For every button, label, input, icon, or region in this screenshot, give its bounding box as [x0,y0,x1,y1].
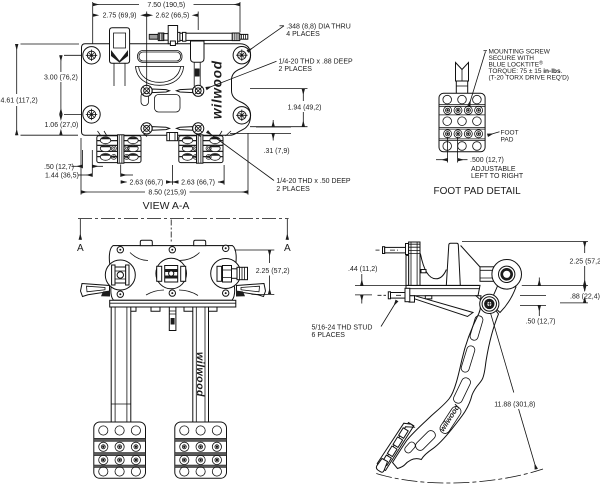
svg-text:11.88 (301,8): 11.88 (301,8) [494,401,535,408]
svg-text:2.62 (66,5): 2.62 (66,5) [155,13,189,20]
svg-text:4.61 (117,2): 4.61 (117,2) [1,97,38,104]
svg-text:PAD: PAD [501,136,514,143]
svg-text:.44 (11,2): .44 (11,2) [348,266,377,273]
svg-text:wilwood: wilwood [194,352,206,397]
svg-text:7.50 (190,5): 7.50 (190,5) [147,2,185,9]
svg-text:A: A [284,243,291,254]
svg-text:2 PLACES: 2 PLACES [279,66,313,73]
svg-text:.50 (12,7): .50 (12,7) [526,318,556,325]
svg-text:1/4-20 THD x .50 DEEP: 1/4-20 THD x .50 DEEP [276,178,351,185]
svg-text:2.63 (66,7): 2.63 (66,7) [181,180,215,187]
svg-text:1.94 (49,2): 1.94 (49,2) [288,105,322,112]
svg-text:(T-20 TORX DRIVE REQ'D): (T-20 TORX DRIVE REQ'D) [489,74,569,81]
svg-text:2.75 (69,9): 2.75 (69,9) [103,13,137,20]
svg-text:wilwood: wilwood [210,60,225,119]
svg-text:6 PLACES: 6 PLACES [312,332,346,339]
svg-text:LEFT TO RIGHT: LEFT TO RIGHT [471,173,524,180]
svg-text:2 PLACES: 2 PLACES [276,186,310,193]
svg-text:2.25 (57,2): 2.25 (57,2) [256,268,290,275]
svg-text:FOOT PAD DETAIL: FOOT PAD DETAIL [434,186,522,197]
svg-text:.50 (12,7): .50 (12,7) [44,164,74,171]
svg-text:2.63 (66,7): 2.63 (66,7) [129,180,163,187]
svg-text:2.25 (57,2): 2.25 (57,2) [570,258,600,265]
svg-text:3.00 (76,2): 3.00 (76,2) [44,75,78,82]
svg-text:.88 (22,4): .88 (22,4) [570,294,600,301]
svg-text:.31 (7,9): .31 (7,9) [264,148,290,155]
svg-text:1.44 (36,5): 1.44 (36,5) [45,172,79,179]
svg-text:A: A [77,243,84,254]
svg-text:5/16-24 THD STUD: 5/16-24 THD STUD [312,325,373,332]
svg-text:.500 (12,7): .500 (12,7) [470,157,504,164]
svg-text:1.06 (27,0): 1.06 (27,0) [44,122,78,129]
svg-text:1/4-20 THD x .88 DEEP: 1/4-20 THD x .88 DEEP [279,59,354,66]
svg-text:4 PLACES: 4 PLACES [286,31,320,38]
svg-text:ADJUSTABLE: ADJUSTABLE [471,166,516,173]
svg-text:8.50 (215,9): 8.50 (215,9) [148,190,186,197]
svg-text:FOOT: FOOT [501,129,519,136]
svg-text:.348 (8,8) DIA THRU: .348 (8,8) DIA THRU [286,23,350,30]
svg-text:VIEW A-A: VIEW A-A [143,200,190,212]
